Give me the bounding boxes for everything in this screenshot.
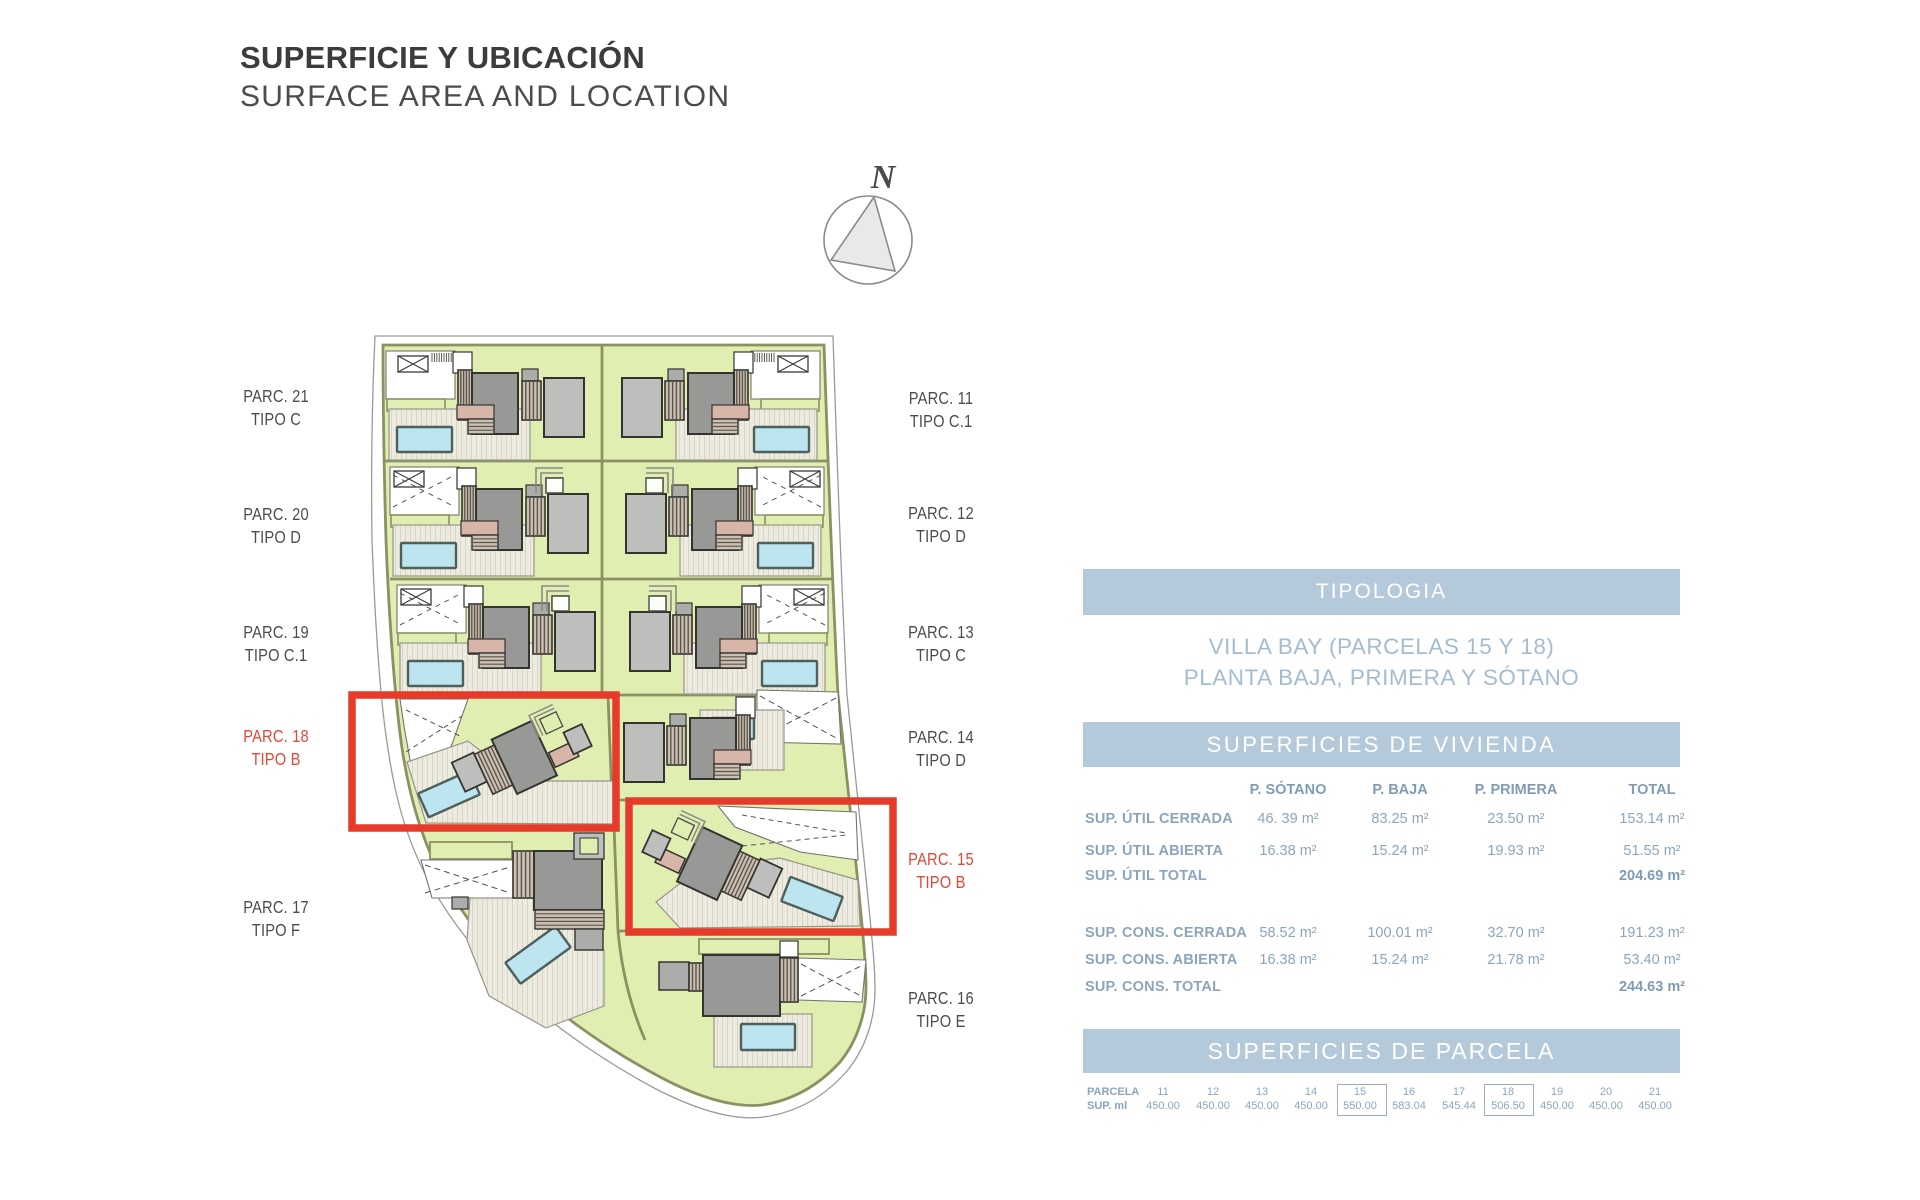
svg-text:N: N — [870, 159, 897, 196]
